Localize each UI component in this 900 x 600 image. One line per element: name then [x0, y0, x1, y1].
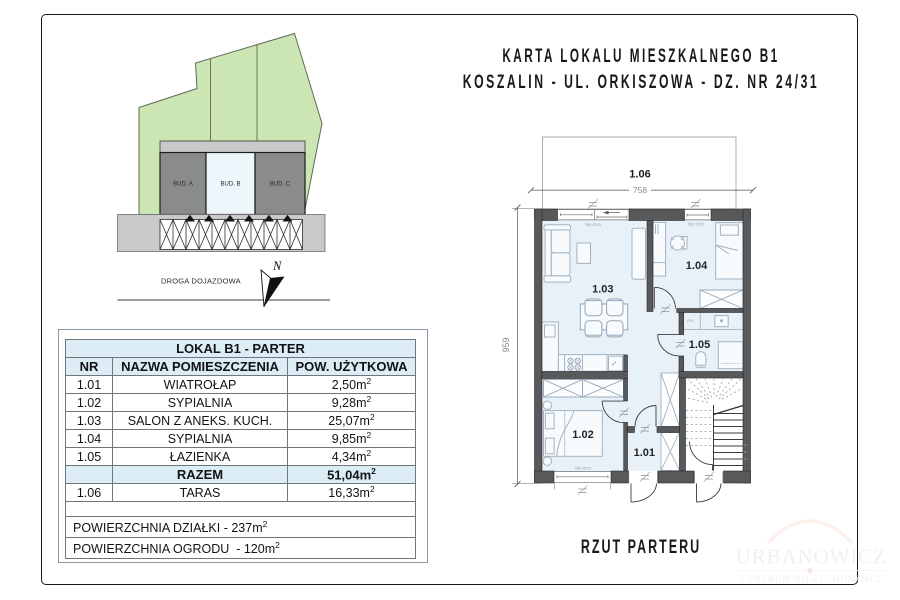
- svg-text:1.01: 1.01: [634, 447, 655, 459]
- svg-text:BUD. C: BUD. C: [270, 182, 291, 188]
- svg-text:1.02: 1.02: [572, 429, 593, 441]
- svg-text:1.04: 1.04: [686, 260, 708, 272]
- svg-text:959: 959: [501, 337, 511, 352]
- svg-text:N: N: [272, 259, 282, 273]
- svg-text:P/S: P/S: [687, 318, 694, 323]
- svg-text:DROGA DOJAZDOWA: DROGA DOJAZDOWA: [161, 277, 241, 286]
- svg-text:758: 758: [633, 185, 647, 195]
- svg-text:1.03: 1.03: [592, 284, 613, 296]
- svg-text:1.06: 1.06: [629, 169, 650, 181]
- svg-text:Np=0cm: Np=0cm: [575, 465, 591, 470]
- svg-text:1.05: 1.05: [689, 339, 710, 351]
- svg-text:CENTRUM NIERUCHOMOŚCI: CENTRUM NIERUCHOMOŚCI: [741, 574, 881, 584]
- svg-text:BUD. A: BUD. A: [173, 182, 193, 188]
- svg-text:BUD. B: BUD. B: [220, 182, 240, 188]
- svg-text:Np=0cm: Np=0cm: [688, 221, 704, 226]
- svg-text:URBANOWICZ: URBANOWICZ: [736, 545, 887, 569]
- svg-text:Np=0cm: Np=0cm: [585, 222, 601, 227]
